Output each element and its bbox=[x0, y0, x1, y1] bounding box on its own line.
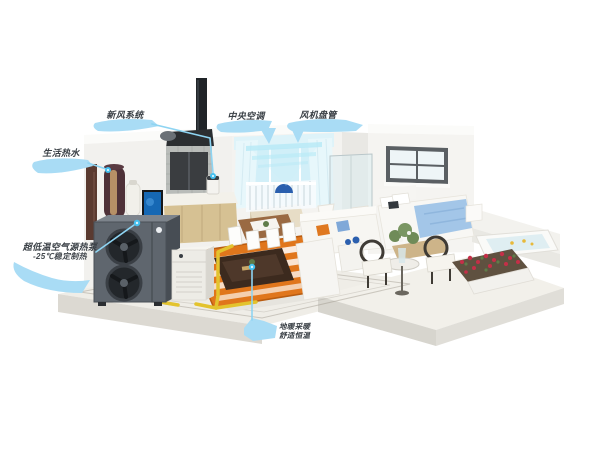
fan-top bbox=[107, 230, 141, 264]
fan-bottom bbox=[107, 266, 141, 300]
label-swoosh-fresh-air bbox=[94, 119, 159, 131]
balcony-railing bbox=[246, 180, 316, 212]
label-swoosh-hot-water bbox=[32, 158, 93, 173]
heat-pump-outdoor-unit bbox=[94, 215, 180, 306]
orange-cushion bbox=[316, 224, 330, 236]
hydronic-indoor-unit bbox=[172, 246, 214, 300]
blue-cushion bbox=[336, 220, 350, 232]
accent-pillow bbox=[388, 201, 399, 209]
label-swoosh-heat-pump bbox=[13, 262, 90, 293]
house-cutaway-illustration bbox=[0, 0, 600, 450]
water-softener bbox=[126, 183, 140, 216]
half-wall bbox=[296, 238, 340, 300]
bedroom-window bbox=[384, 146, 450, 188]
